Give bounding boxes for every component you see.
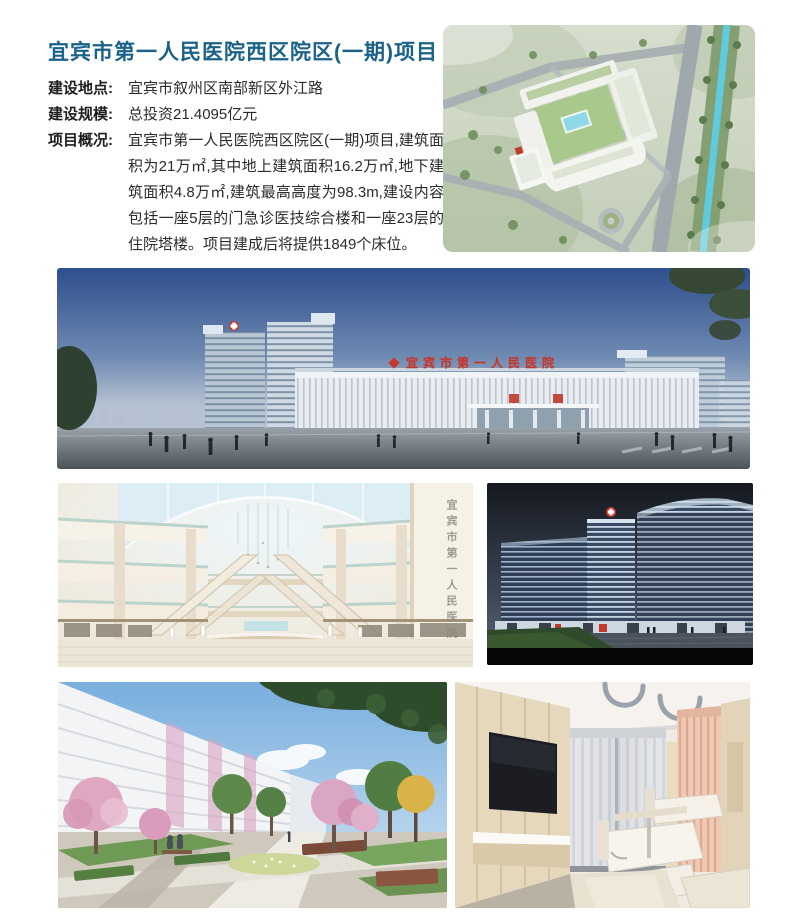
- info-value-location: 宜宾市叙州区南部新区外江路: [128, 76, 444, 102]
- ward-rendering-image: [455, 682, 750, 908]
- night-rendering-image: [487, 483, 753, 665]
- night-rendering-graphic: [487, 483, 753, 665]
- aerial-rendering-graphic: [443, 25, 755, 252]
- info-label-scale: 建设规模:: [48, 102, 128, 128]
- ward-rendering-graphic: [455, 682, 750, 908]
- hospital-sign-text: 宜宾市第一人民医院: [406, 354, 559, 371]
- info-row-overview: 项目概况: 宜宾市第一人民医院西区院区(一期)项目,建筑面积为21万㎡,其中地上…: [48, 128, 444, 258]
- brochure-page: 宜宾市第一人民医院西区院区(一期)项目 建设地点: 宜宾市叙州区南部新区外江路 …: [0, 0, 800, 919]
- atrium-rendering-graphic: [58, 483, 473, 667]
- hospital-sign: 宜宾市第一人民医院: [390, 354, 559, 371]
- page-title: 宜宾市第一人民医院西区院区(一期)项目: [48, 38, 468, 68]
- project-info-section: 建设地点: 宜宾市叙州区南部新区外江路 建设规模: 总投资21.4095亿元 项…: [48, 76, 444, 258]
- info-value-scale: 总投资21.4095亿元: [128, 102, 444, 128]
- info-value-overview: 宜宾市第一人民医院西区院区(一期)项目,建筑面积为21万㎡,其中地上建筑面积16…: [128, 128, 444, 258]
- hospital-logo-icon: [388, 357, 399, 368]
- panorama-rendering-image: 宜宾市第一人民医院: [57, 268, 750, 469]
- courtyard-rendering-graphic: [58, 682, 447, 908]
- atrium-rendering-image: 宜宾市第一人民医院: [58, 483, 473, 667]
- info-label-overview: 项目概况:: [48, 128, 128, 154]
- info-row-location: 建设地点: 宜宾市叙州区南部新区外江路: [48, 76, 444, 102]
- courtyard-rendering-image: [58, 682, 447, 908]
- aerial-rendering-image: [443, 25, 755, 252]
- atrium-wall-text: 宜宾市第一人民医院: [443, 499, 459, 643]
- info-row-scale: 建设规模: 总投资21.4095亿元: [48, 102, 444, 128]
- info-label-location: 建设地点:: [48, 76, 128, 102]
